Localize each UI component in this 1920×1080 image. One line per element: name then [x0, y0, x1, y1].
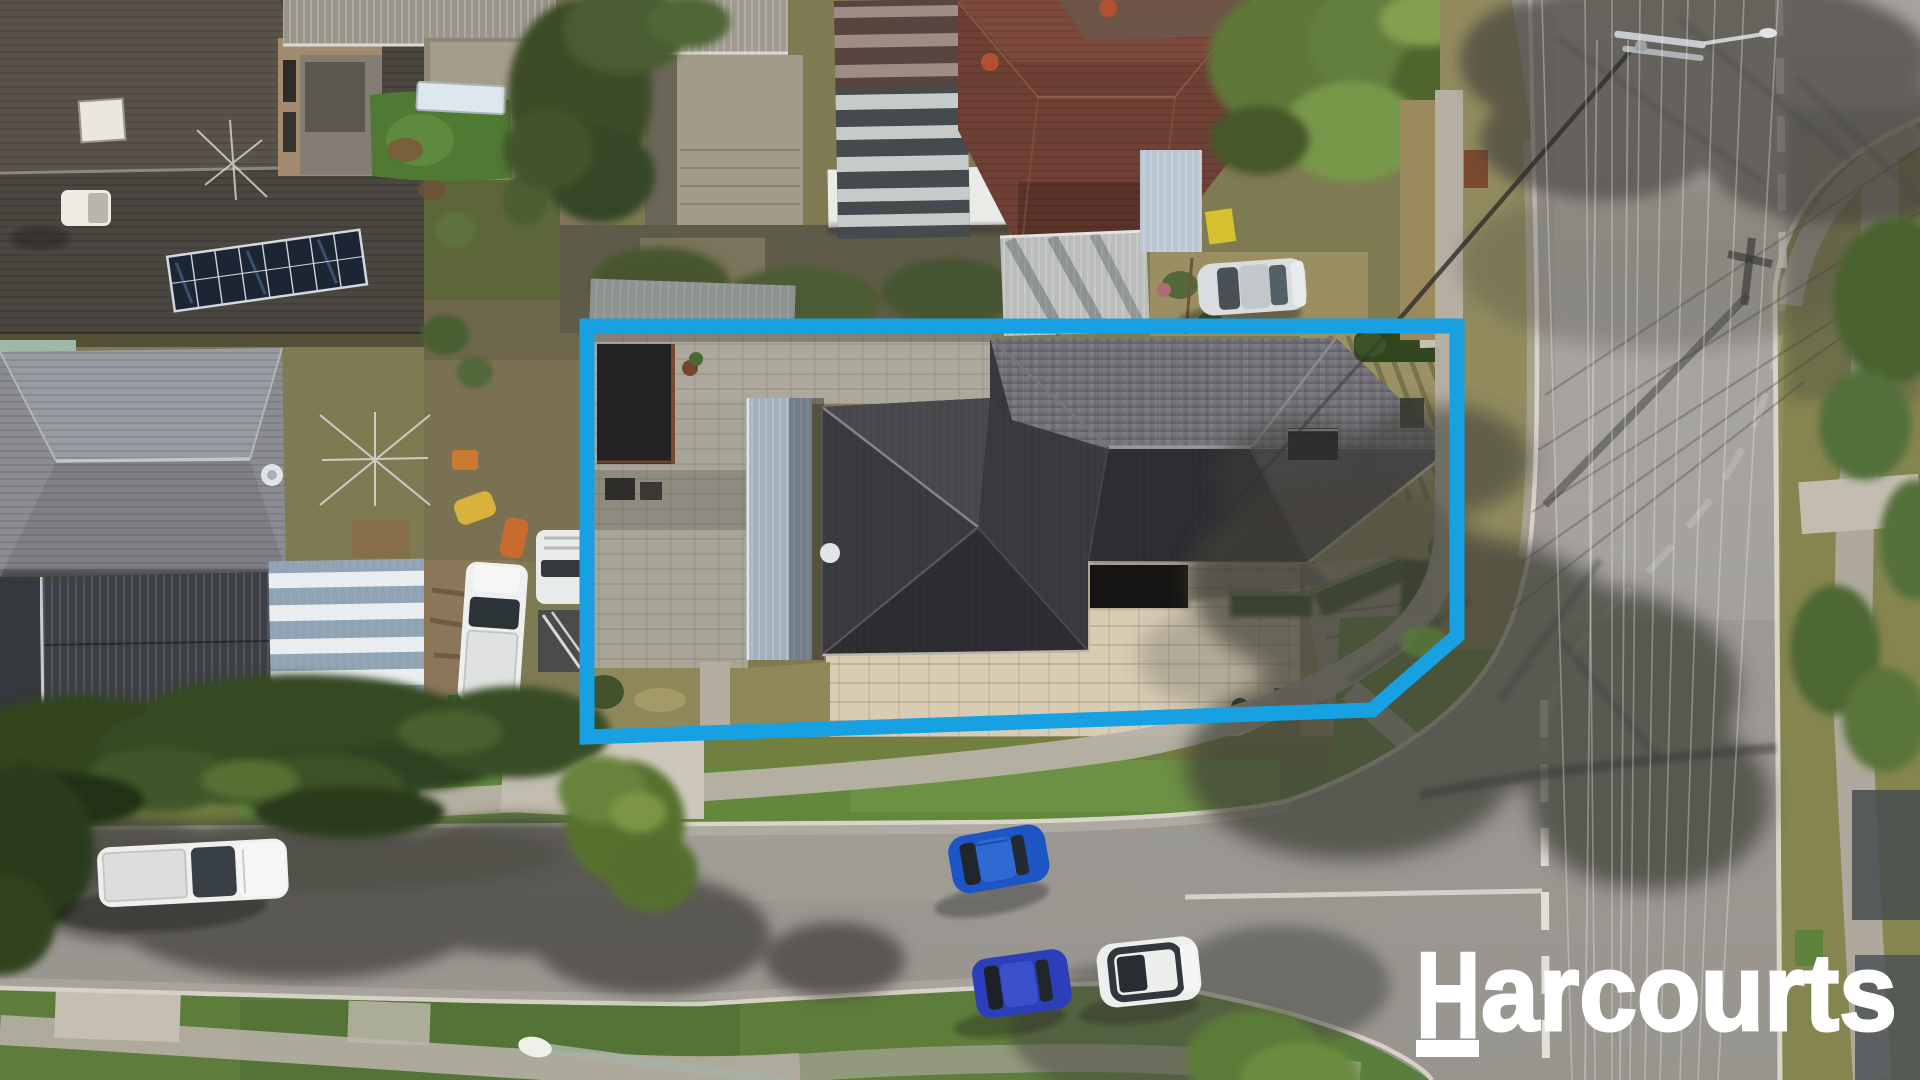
- svg-text:arcourts: arcourts: [1481, 930, 1897, 1053]
- svg-text:H: H: [1416, 926, 1480, 1063]
